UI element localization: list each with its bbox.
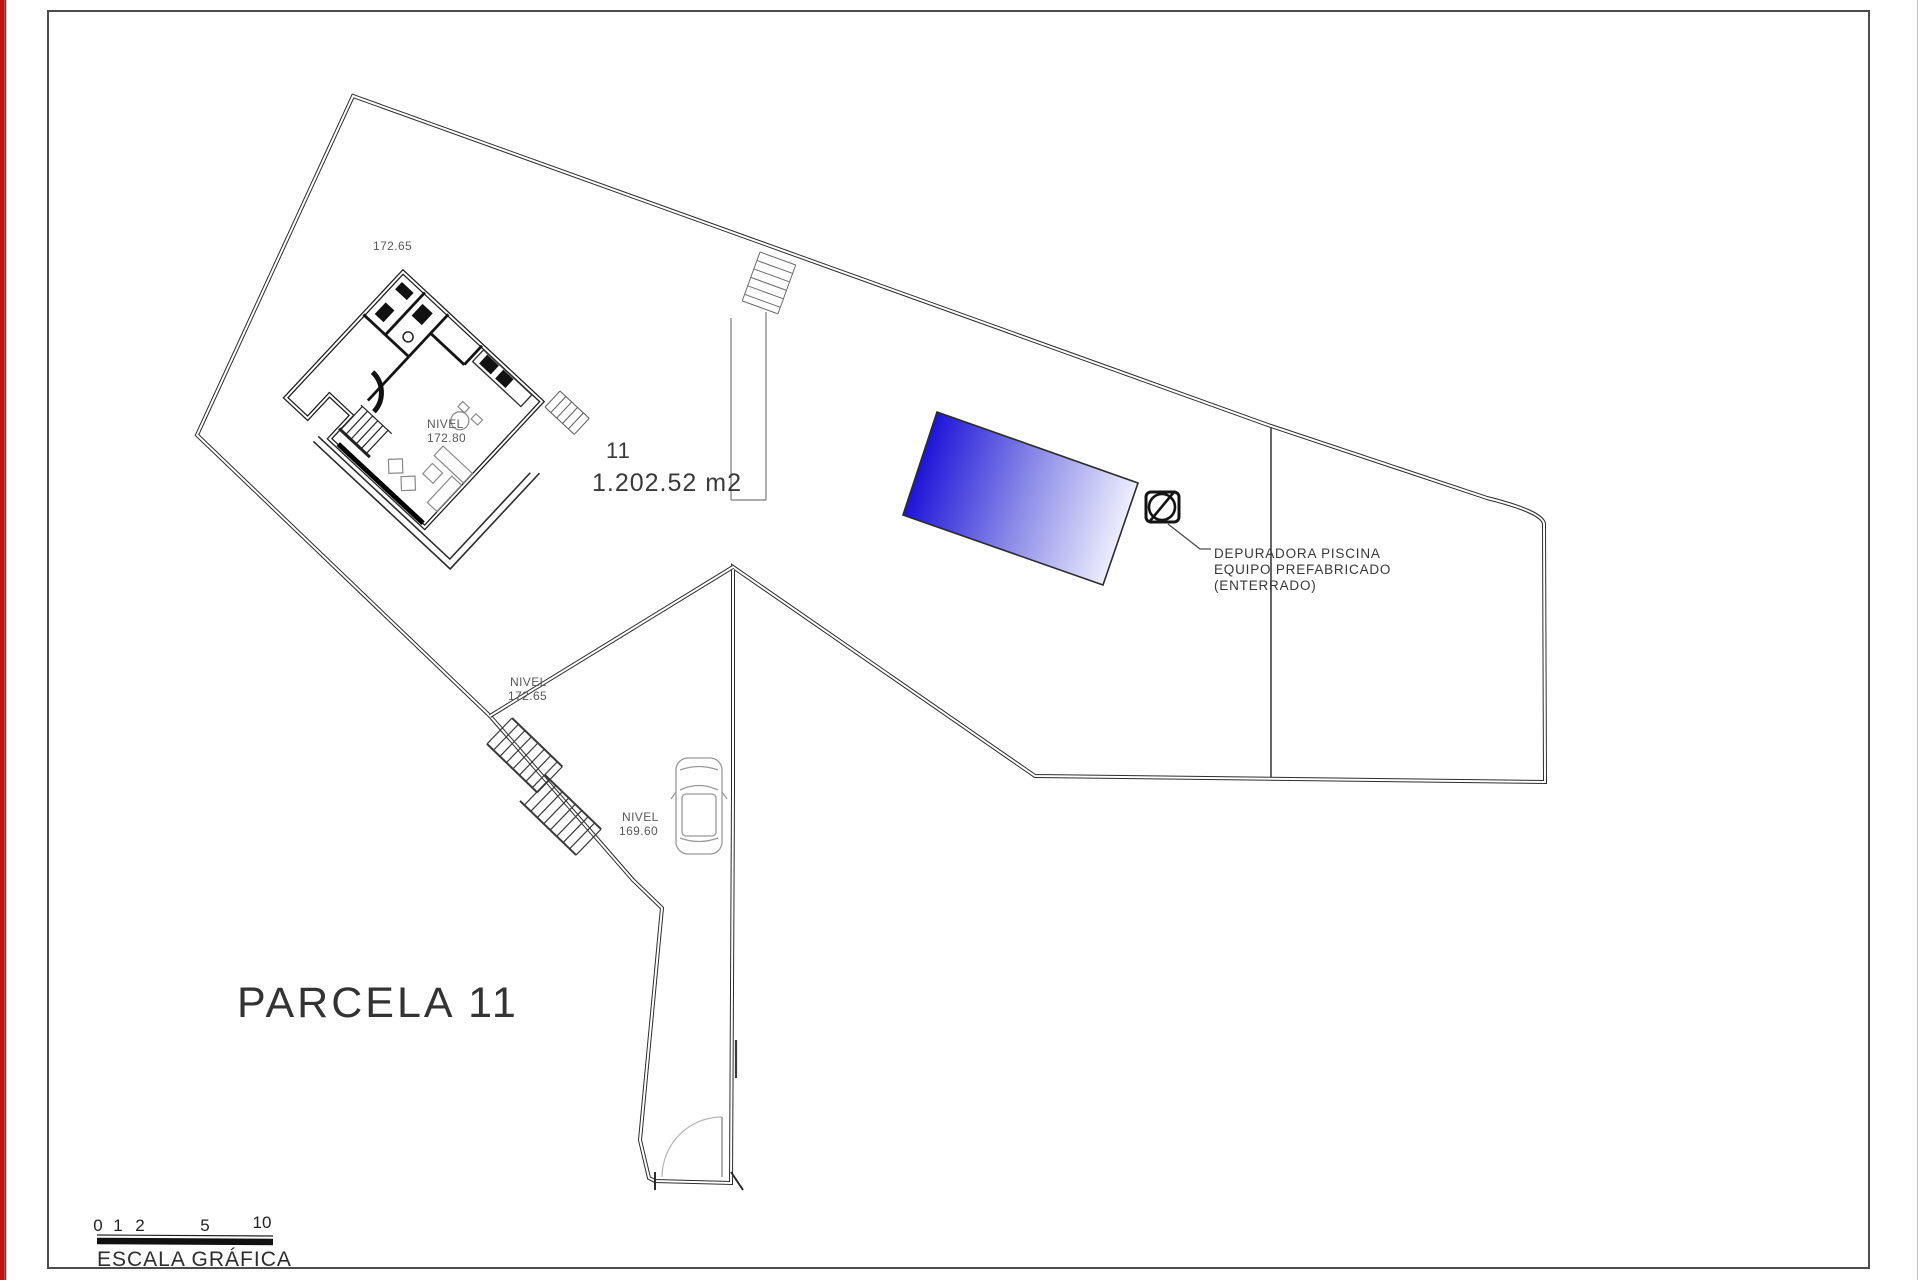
scale-tick-1: 1 bbox=[113, 1216, 122, 1235]
driveway-level-label: NIVEL bbox=[622, 810, 659, 824]
pool-purifier-note: DEPURADORA PISCINA EQUIPO PREFABRICADO (… bbox=[1214, 546, 1391, 593]
scale-tick-2: 2 bbox=[135, 1216, 144, 1235]
sheet-title: PARCELA 11 bbox=[237, 979, 519, 1027]
scale-tick-5: 5 bbox=[200, 1216, 209, 1235]
pool-purifier-leader bbox=[1168, 524, 1211, 549]
site-plan-svg: 172.65 NIVEL 172.80 NIVEL 172.65 NIVEL 1… bbox=[0, 0, 1920, 1280]
graphic-scale: 0 1 2 5 10 ESCALA GRÁFICA bbox=[93, 1213, 292, 1271]
drawing-frame bbox=[48, 11, 1869, 1268]
pool-note-line2: EQUIPO PREFABRICADO bbox=[1214, 562, 1391, 577]
driveway-stairs bbox=[487, 718, 601, 855]
sheet-edge-red-stripe bbox=[0, 0, 5, 1280]
pool-note-line1: DEPURADORA PISCINA bbox=[1214, 546, 1381, 561]
entrance-steps bbox=[742, 252, 795, 314]
scale-tick-10: 10 bbox=[253, 1213, 272, 1232]
house-level-label: NIVEL bbox=[427, 417, 464, 431]
terrace-level-value: 172.65 bbox=[508, 689, 547, 703]
pool bbox=[903, 412, 1138, 585]
house-level-value: 172.80 bbox=[427, 431, 466, 445]
scale-caption: ESCALA GRÁFICA bbox=[97, 1248, 292, 1271]
car bbox=[671, 758, 727, 854]
terrace-level-label: NIVEL bbox=[510, 675, 547, 689]
house-exterior-steps bbox=[545, 391, 589, 434]
house-plan bbox=[277, 257, 590, 569]
drawing-sheet: 172.65 NIVEL 172.80 NIVEL 172.65 NIVEL 1… bbox=[0, 0, 1920, 1280]
pool-note-line3: (ENTERRADO) bbox=[1214, 578, 1317, 593]
plot-number: 11 bbox=[606, 438, 631, 463]
scale-bar bbox=[97, 1241, 273, 1242]
scale-baseline bbox=[97, 1235, 273, 1236]
scale-tick-0: 0 bbox=[93, 1216, 102, 1235]
plot-area: 1.202.52 m2 bbox=[592, 469, 742, 497]
pool-purifier-icon bbox=[1146, 492, 1179, 522]
driveway-level-value: 169.60 bbox=[619, 824, 658, 838]
spot-level-label: 172.65 bbox=[373, 239, 412, 253]
house-outer-walls bbox=[286, 272, 542, 527]
